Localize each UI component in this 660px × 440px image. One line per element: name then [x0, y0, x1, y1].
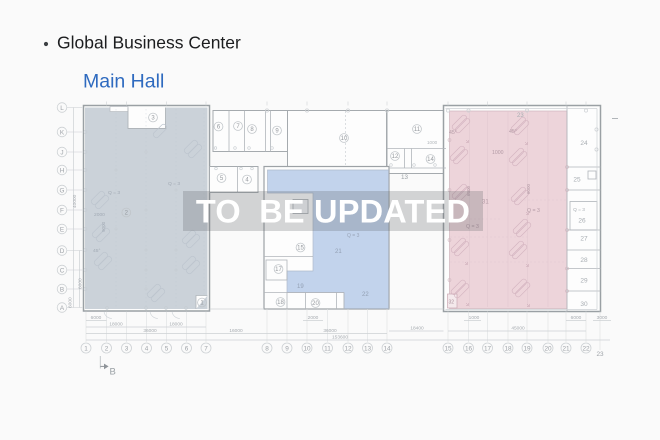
svg-text:14: 14: [383, 345, 391, 352]
svg-text:40000: 40000: [72, 194, 78, 208]
svg-text:153600: 153600: [332, 335, 348, 341]
svg-text:7: 7: [204, 345, 208, 352]
svg-text:19: 19: [523, 345, 531, 352]
svg-text:Global Business Center: Global Business Center: [57, 33, 241, 53]
svg-text:31: 31: [482, 200, 489, 206]
svg-text:17: 17: [484, 345, 492, 352]
svg-text:12: 12: [392, 154, 399, 160]
svg-text:22: 22: [362, 292, 369, 298]
svg-text:18: 18: [277, 300, 284, 306]
svg-text:Q = 3: Q = 3: [527, 208, 540, 214]
svg-text:Q = 3: Q = 3: [347, 233, 360, 239]
svg-text:13: 13: [401, 174, 409, 181]
svg-text:C: C: [60, 267, 65, 274]
svg-text:19: 19: [297, 284, 304, 290]
svg-text:36000: 36000: [323, 328, 337, 334]
svg-text:9000: 9000: [101, 221, 106, 232]
svg-text:8: 8: [265, 345, 269, 352]
svg-text:6000: 6000: [91, 315, 102, 321]
svg-text:17: 17: [275, 267, 282, 273]
svg-text:9: 9: [285, 345, 289, 352]
svg-text:B: B: [110, 367, 116, 378]
svg-text:12: 12: [344, 345, 352, 352]
svg-text:21: 21: [562, 345, 570, 352]
svg-text:J: J: [60, 149, 63, 156]
svg-text:21: 21: [335, 249, 342, 255]
svg-text:14: 14: [427, 157, 434, 163]
svg-text:45°: 45°: [93, 248, 100, 254]
svg-text:E: E: [60, 226, 64, 233]
svg-text:10: 10: [303, 345, 311, 352]
svg-text:36000: 36000: [143, 328, 157, 334]
svg-text:2: 2: [105, 345, 109, 352]
svg-text:1: 1: [84, 345, 88, 352]
svg-text:23: 23: [517, 113, 524, 119]
svg-text:6: 6: [185, 345, 189, 352]
svg-text:A: A: [60, 305, 65, 312]
svg-text:6000: 6000: [68, 297, 74, 308]
svg-text:18000: 18000: [109, 322, 123, 328]
svg-text:5: 5: [165, 345, 169, 352]
svg-text:45°: 45°: [449, 130, 457, 136]
svg-text:15: 15: [444, 345, 452, 352]
svg-text:6000: 6000: [78, 278, 84, 289]
svg-text:20: 20: [312, 301, 319, 307]
svg-text:16: 16: [465, 345, 473, 352]
svg-text:26: 26: [578, 218, 586, 225]
svg-text:18000: 18000: [169, 322, 183, 328]
svg-text:25: 25: [573, 177, 581, 184]
svg-text:24: 24: [580, 140, 588, 147]
svg-text:32: 32: [449, 300, 455, 306]
svg-text:10: 10: [341, 136, 348, 142]
svg-text:G: G: [60, 187, 65, 194]
svg-text:6000: 6000: [571, 315, 582, 321]
svg-text:Q = 3: Q = 3: [108, 190, 120, 196]
svg-text:2000: 2000: [94, 212, 105, 218]
svg-text:1000: 1000: [469, 315, 480, 321]
svg-text:23: 23: [596, 351, 604, 358]
svg-text:K: K: [60, 129, 65, 136]
svg-text:F: F: [60, 207, 64, 214]
svg-text:18400: 18400: [410, 326, 424, 332]
svg-text:30: 30: [580, 301, 588, 308]
svg-text:Q = 3: Q = 3: [168, 181, 180, 187]
svg-text:13: 13: [364, 345, 372, 352]
svg-text:3000: 3000: [597, 315, 608, 321]
svg-text:D: D: [60, 248, 65, 255]
svg-text:6000: 6000: [526, 183, 531, 194]
svg-text:Main Hall: Main Hall: [83, 71, 164, 93]
svg-text:11: 11: [414, 127, 421, 133]
svg-text:11: 11: [324, 345, 331, 352]
svg-text:1000: 1000: [492, 150, 504, 156]
svg-text:18: 18: [504, 345, 512, 352]
svg-text:B: B: [60, 286, 64, 293]
svg-text:20: 20: [544, 345, 552, 352]
svg-text:L: L: [60, 105, 64, 112]
svg-text:Q = 3: Q = 3: [573, 207, 585, 213]
svg-text:1000: 1000: [427, 140, 438, 145]
svg-text:H: H: [60, 167, 65, 174]
svg-text:29: 29: [580, 278, 588, 285]
svg-text:16000: 16000: [229, 328, 243, 334]
svg-text:TO BE UPDATED: TO BE UPDATED: [196, 194, 470, 230]
svg-text:4: 4: [145, 345, 149, 352]
svg-text:22: 22: [582, 345, 590, 352]
svg-text:3: 3: [125, 345, 129, 352]
svg-text:28: 28: [580, 257, 588, 264]
svg-text:45000: 45000: [511, 326, 525, 332]
svg-text:45°: 45°: [509, 129, 517, 135]
svg-text:15: 15: [297, 246, 304, 252]
svg-text:27: 27: [580, 236, 588, 243]
svg-text:2000: 2000: [308, 315, 319, 321]
